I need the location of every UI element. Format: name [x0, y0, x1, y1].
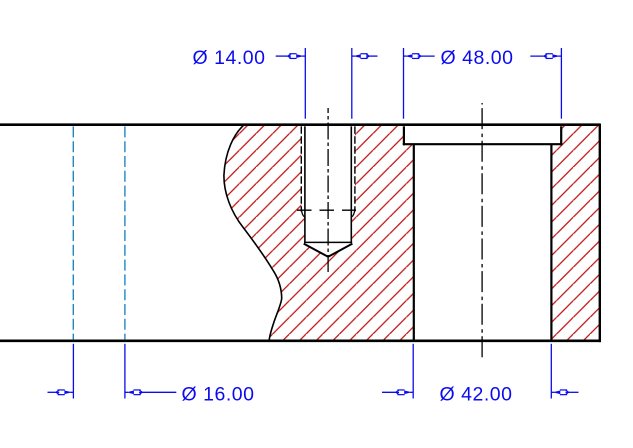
svg-text:Ø 16.00: Ø 16.00: [182, 383, 255, 405]
svg-text:Ø 42.00: Ø 42.00: [440, 383, 513, 405]
svg-text:Ø 14.00: Ø 14.00: [193, 47, 266, 69]
svg-text:Ø 48.00: Ø 48.00: [441, 47, 514, 69]
